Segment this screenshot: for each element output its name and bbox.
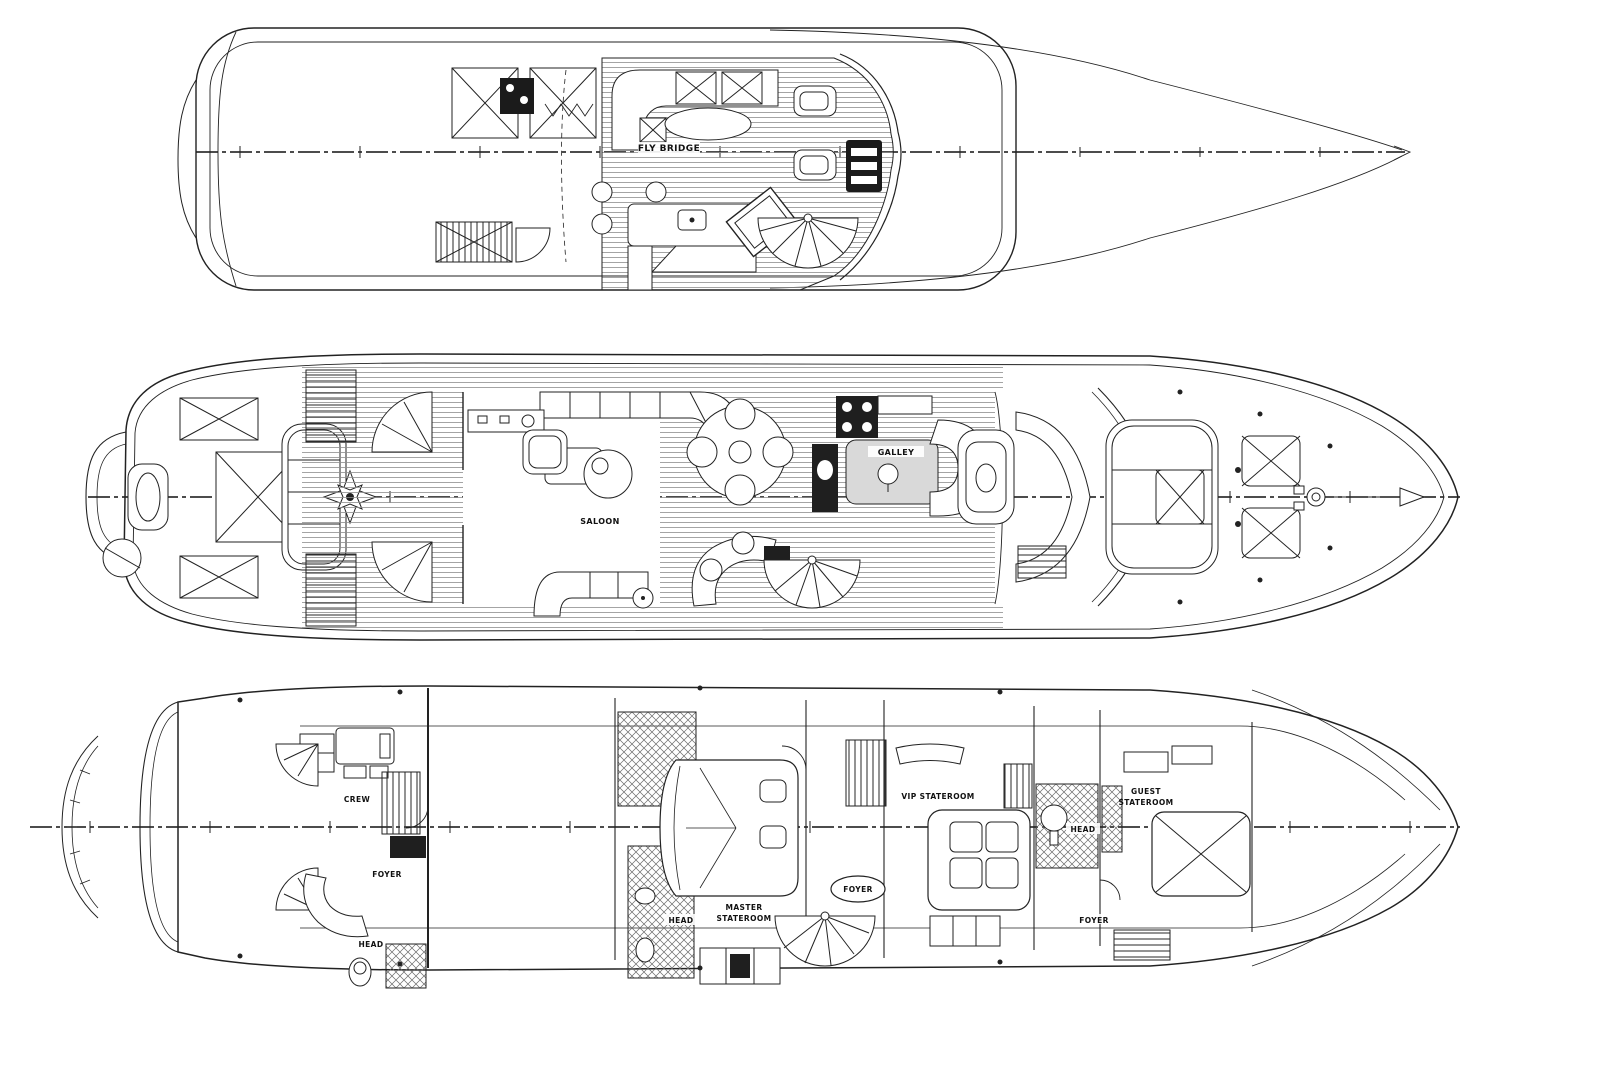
label-guest-foyer: FOYER <box>1079 916 1109 925</box>
label-foyer-oval: FOYER <box>843 885 873 894</box>
label-crew-foyer: FOYER <box>372 870 402 879</box>
label-guest-1: GUEST <box>1131 787 1161 796</box>
label-guest-2: STATEROOM <box>1119 798 1174 807</box>
label-master-head: HEAD <box>668 916 693 925</box>
davit-crane <box>500 78 534 114</box>
deck-plans-svg: FLY BRIDGE <box>0 0 1600 1067</box>
label-vip: VIP STATEROOM <box>901 792 974 801</box>
master-stateroom <box>618 712 806 984</box>
label-fly-bridge: FLY BRIDGE <box>638 144 700 154</box>
deck-main: SALOON GALLEY <box>86 354 1460 640</box>
deck-hatch-grate <box>436 222 512 262</box>
label-vip-head: HEAD <box>1070 825 1095 834</box>
label-master-1: MASTER <box>725 903 762 912</box>
flybridge-table <box>665 108 751 140</box>
label-master-2: STATEROOM <box>717 914 772 923</box>
vip-stateroom <box>896 744 1032 946</box>
label-crew-head: HEAD <box>358 940 383 949</box>
deck-flybridge: FLY BRIDGE <box>178 28 1410 290</box>
yacht-deck-plan-drawing: FLY BRIDGE <box>0 0 1600 1067</box>
deck-lower: CREW FOYER HEAD HEAD MASTER STATEROOM <box>30 686 1460 989</box>
label-galley: GALLEY <box>878 448 915 457</box>
label-crew: CREW <box>344 795 371 804</box>
label-saloon: SALOON <box>580 517 619 526</box>
door-swing <box>516 228 550 262</box>
crew-quarters <box>276 728 428 988</box>
